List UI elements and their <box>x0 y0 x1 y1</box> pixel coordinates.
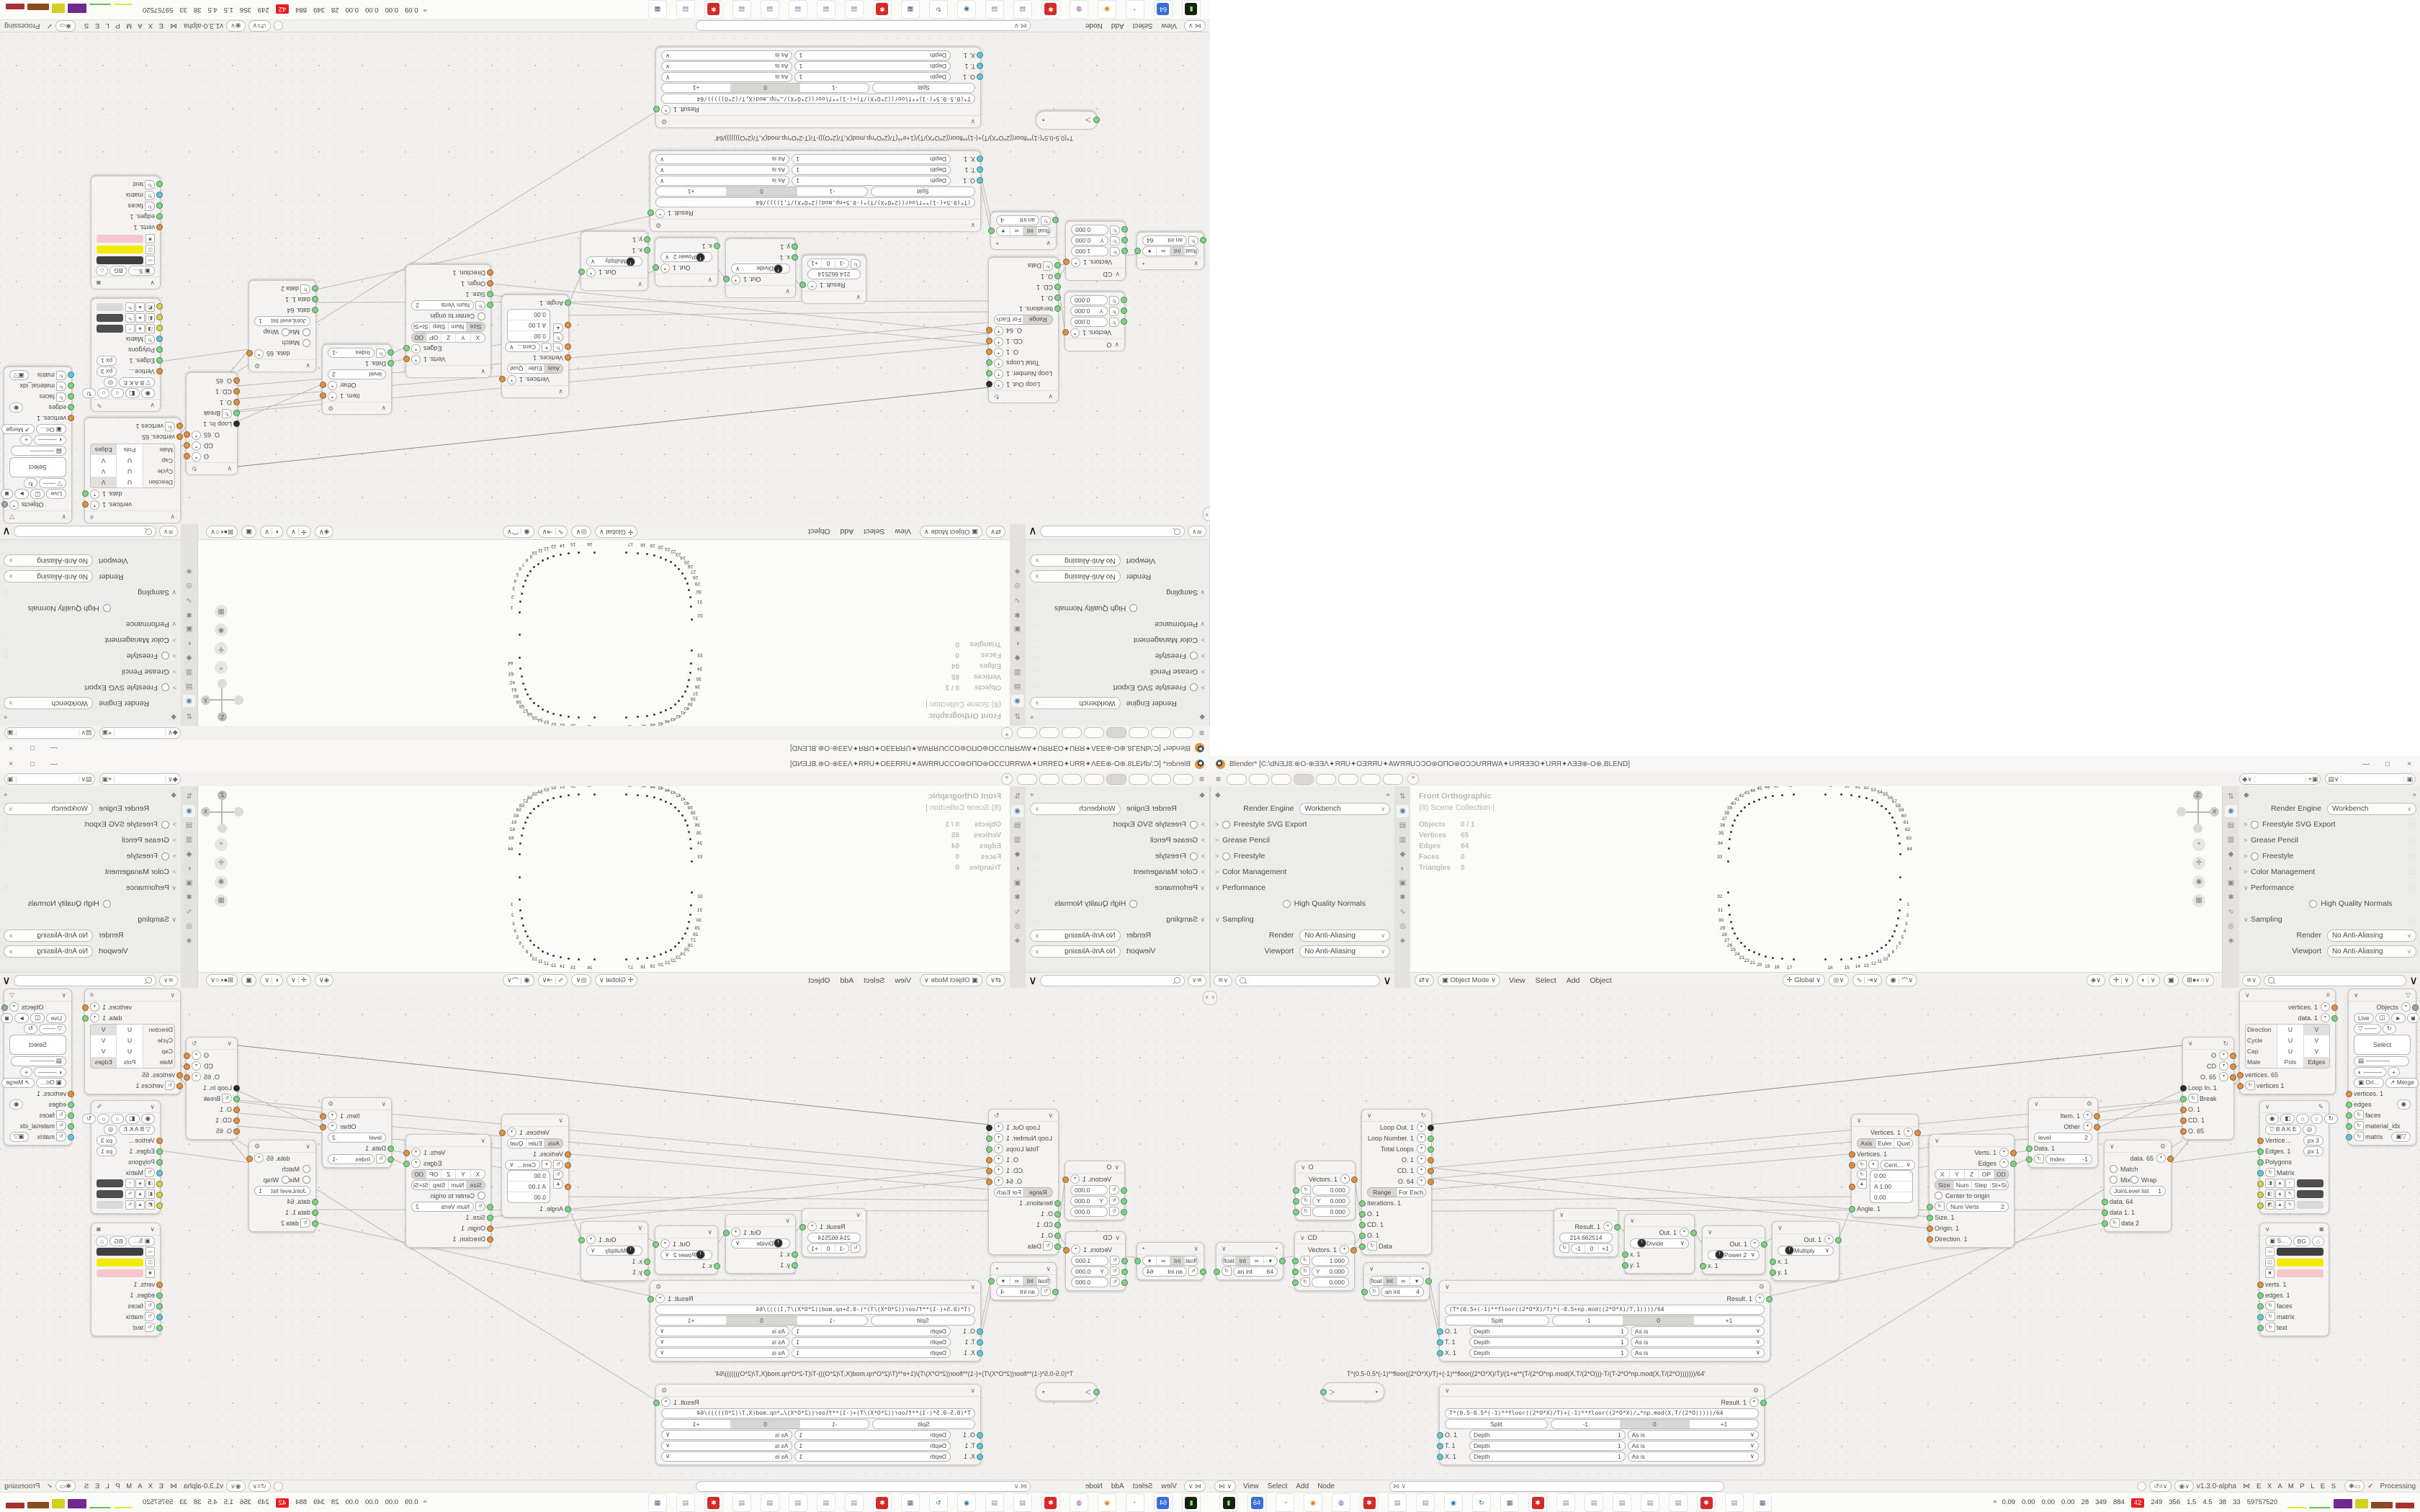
properties-tab-icon[interactable]: ◆ <box>1011 848 1023 860</box>
tool-button[interactable]: ○ <box>111 389 123 399</box>
pin-icon[interactable]: ⌖ <box>1386 791 1390 799</box>
segmented-toggle[interactable]: AxisEulerQuat <box>507 1138 563 1148</box>
socket-options-icon[interactable]: ↻ <box>222 409 232 418</box>
swatch-icon[interactable]: ▲ <box>135 313 145 323</box>
socket-l[interactable] <box>1093 1389 1100 1395</box>
socket-r[interactable] <box>1690 1230 1697 1236</box>
checkbox[interactable] <box>1935 1192 1942 1200</box>
node-formula-2[interactable]: ∨⚙Result. 1▾T*(0.5-0.5*(-1)**floor((2*O*… <box>1439 1384 1765 1465</box>
socket-l[interactable] <box>2237 1083 2244 1089</box>
checkbox-row[interactable]: High Quality Normals <box>4 600 176 616</box>
nav-gizmo[interactable]: Z X <box>200 678 243 721</box>
node-header[interactable]: ∨• <box>991 1263 1056 1275</box>
collapse-icon[interactable]: ∨ <box>1114 1164 1119 1171</box>
shading-icon[interactable]: ● <box>223 976 228 984</box>
collapse-icon[interactable]: ∨ <box>150 279 155 287</box>
node-vector-in-cd[interactable]: ∨CDVectors. 1▾↻1.000↻Y0.000↻0.000 <box>1065 221 1126 281</box>
decor[interactable]: ↻ <box>553 1170 563 1179</box>
properties-tab-icon[interactable]: ▤ <box>183 819 195 832</box>
swatch-icon[interactable]: ◨ <box>145 324 155 333</box>
socket-r[interactable] <box>1760 1400 1767 1406</box>
taskbar-app-icon[interactable]: ◉ <box>1098 1493 1116 1512</box>
socket-r[interactable] <box>246 351 253 357</box>
socket-r[interactable] <box>986 1157 992 1164</box>
tool-button[interactable]: ◐ ——— <box>2354 1067 2386 1077</box>
properties-tab-icon[interactable]: ◎ <box>1011 580 1023 592</box>
panel-checkbox[interactable] <box>1222 821 1230 829</box>
add-workspace-button[interactable]: + <box>1407 773 1419 785</box>
menu-view[interactable]: View <box>1509 976 1525 985</box>
socket-options-icon[interactable]: ↻ <box>145 1312 155 1321</box>
gizmo-x-axis[interactable]: X <box>2210 807 2219 816</box>
socket-l[interactable] <box>1359 1222 1366 1228</box>
swatch-icon[interactable]: ▲ <box>135 302 145 312</box>
node-header[interactable]: ∨▽ <box>2349 989 2416 1002</box>
properties-tab-icon[interactable]: ◈ <box>2225 935 2237 947</box>
collapse-icon[interactable]: ∨ <box>2110 1143 2115 1151</box>
panel-header-row[interactable]: ∨Performance::: <box>1215 880 1390 896</box>
panel-header-row[interactable]: >Freestyle SVG Export::: <box>4 680 176 696</box>
value-field[interactable]: JoinLevel list1 <box>254 317 310 327</box>
node-header[interactable]: ∨CD <box>1066 268 1125 280</box>
node-header[interactable]: ∨ <box>1554 1209 1618 1221</box>
taskbar-app-icon[interactable]: ✱ <box>1697 1493 1716 1512</box>
node-header[interactable]: ∨ <box>1852 1115 1918 1127</box>
node-line[interactable]: ∨Verts. 1▾Edges▾XYZOPODSizeNumStepSt+SiC… <box>405 1134 491 1248</box>
collapse-icon[interactable]: ∨ <box>707 276 712 284</box>
panel-header-row[interactable]: >Freestyle SVG Export::: <box>2244 816 2416 832</box>
socket-l[interactable] <box>1927 1215 1933 1221</box>
taskbar-app-icon[interactable]: ▤ <box>1669 1493 1688 1512</box>
split-button[interactable]: Split <box>871 1315 975 1326</box>
properties-tab-icon[interactable]: ✱ <box>1397 891 1409 904</box>
taskbar-app-icon[interactable]: ▮ <box>1219 1493 1238 1512</box>
viewport-3d[interactable]: Front Orthographic (8) Scene Collection … <box>198 786 1010 972</box>
property-value-dropdown[interactable]: Workbench∨ <box>4 803 93 815</box>
socket-l[interactable] <box>487 1215 493 1221</box>
socket-menu-icon[interactable]: ▾ <box>9 500 19 510</box>
socket-menu-icon[interactable]: ▾ <box>994 1122 1003 1132</box>
number-field[interactable]: Y0.000 <box>1312 1196 1350 1206</box>
close-button[interactable]: × <box>0 744 22 752</box>
formula-field[interactable]: (T*(0.5+(-1)**floor((2*O*X)/T)*(-0.5+np.… <box>655 1305 975 1315</box>
color-swatch[interactable] <box>97 246 143 253</box>
socket-l[interactable] <box>2257 1170 2264 1176</box>
property-value-dropdown[interactable]: No Anti-Aliasing∨ <box>4 945 93 958</box>
node-menu-select[interactable]: Select <box>1133 1482 1153 1490</box>
stepper[interactable]: -10+1 <box>807 259 849 269</box>
panel-header-row[interactable]: ∨Performance::: <box>1030 616 1205 632</box>
properties-tab-icon[interactable]: ▤ <box>1011 680 1023 693</box>
node-header[interactable]: ∨CD <box>1066 1232 1125 1244</box>
socket-menu-icon[interactable]: ▾ <box>994 369 1003 379</box>
xray-toggle[interactable]: ◐∨ <box>260 526 283 538</box>
grid-option[interactable]: U <box>117 455 143 466</box>
socket-l[interactable] <box>2237 1072 2244 1079</box>
socket-r[interactable] <box>647 210 654 217</box>
socket-options-icon[interactable]: ↻ <box>2354 1121 2364 1130</box>
socket-options-icon[interactable]: ↻ <box>2034 1154 2044 1164</box>
collapse-icon[interactable]: ∨ <box>2 973 11 988</box>
grid-option[interactable]: V <box>2303 1025 2329 1035</box>
socket-r[interactable] <box>647 1296 654 1302</box>
taskbar-app-icon[interactable]: ▤ <box>985 0 1004 19</box>
socket-menu-icon[interactable]: ▾ <box>9 1002 19 1012</box>
tool-button[interactable]: ◙ <box>1 490 13 500</box>
color-swatch[interactable] <box>97 256 143 264</box>
node-header[interactable]: ∨ <box>1930 1135 2014 1147</box>
collapse-icon[interactable]: ∨ <box>1046 1265 1051 1273</box>
segmented-toggle[interactable]: AxisEulerQuat <box>507 364 563 374</box>
socket-l[interactable] <box>156 1292 163 1299</box>
socket-menu-icon[interactable]: ▾ <box>1750 1239 1760 1248</box>
copy-icon[interactable]: ▣ <box>102 775 109 783</box>
node-header[interactable]: ∨ <box>655 274 717 286</box>
socket-r[interactable] <box>1425 1278 1432 1284</box>
node-math-multiply[interactable]: ∨Out. 1▾f Multiply∨x. 1y. 1 <box>1772 1221 1839 1281</box>
socket-menu-icon[interactable]: ▾ <box>2321 1013 2330 1022</box>
socket-menu-icon[interactable]: ▾ <box>507 1128 516 1137</box>
grid-view-button[interactable]: ▦ <box>215 605 228 618</box>
socket-r[interactable] <box>184 1063 190 1070</box>
tool-button[interactable]: ◉ <box>141 389 155 399</box>
tool-button[interactable]: ○ <box>2296 1114 2308 1124</box>
tool-button[interactable]: ▽ B A K E <box>119 378 155 388</box>
workspace-tab[interactable] <box>1316 774 1336 785</box>
swatch-icon[interactable]: ■ <box>145 234 155 243</box>
panel-header-row[interactable]: >Grease Pencil::: <box>4 664 176 680</box>
taskbar-app-icon[interactable]: ↻ <box>1472 1493 1491 1512</box>
taskbar-app-icon[interactable]: ◍ <box>1070 0 1088 19</box>
tool-button[interactable]: ▤ ———— <box>11 446 66 456</box>
panel-header-row[interactable]: ∨Sampling::: <box>4 585 176 600</box>
math-operation-dropdown[interactable]: f Multiply∨ <box>586 257 642 267</box>
socket-extra-icon[interactable]: ◉ <box>2397 1099 2411 1110</box>
socket-menu-icon[interactable]: ▾ <box>731 1228 740 1237</box>
taskbar-app-icon[interactable]: ▮ <box>1182 1493 1201 1512</box>
socket-l[interactable] <box>1849 1184 1855 1190</box>
property-value-dropdown[interactable]: No Anti-Aliasing∨ <box>2327 930 2416 942</box>
panel-header-row[interactable]: >Color Management::: <box>2244 864 2416 880</box>
node-tree-selector[interactable]: ⋈ ∨ <box>696 21 1031 32</box>
taskbar-app-icon[interactable]: ◔ <box>1126 1493 1144 1512</box>
center-dropdown[interactable]: Cent…∨ <box>505 1160 540 1170</box>
node-vector-in-cd[interactable]: ∨CDVectors. 1▾↻1.000↻Y0.000↻0.000 <box>1294 1231 1355 1291</box>
socket-options-icon[interactable]: ↻ <box>1043 261 1053 271</box>
properties-tab-icon[interactable]: ⇅ <box>1011 709 1023 721</box>
panel-header-row[interactable]: >Freestyle::: <box>1215 848 1390 864</box>
gizmo-x-axis[interactable]: X <box>201 807 210 816</box>
workspace-tab[interactable] <box>1129 774 1149 785</box>
color-swatch[interactable] <box>97 1190 123 1198</box>
socket-options-icon[interactable]: ↻ <box>475 301 485 310</box>
node-menu-select[interactable]: Select <box>1133 22 1153 30</box>
checkbox[interactable] <box>2309 900 2317 908</box>
property-value-dropdown[interactable]: No Anti-Aliasing∨ <box>4 555 93 567</box>
menu-icon[interactable]: ≡ <box>1199 728 1204 738</box>
properties-tab-icon[interactable]: ✱ <box>183 608 195 621</box>
socket-options-icon[interactable]: ↻ <box>1041 1287 1051 1296</box>
proportional-edit-toggle[interactable]: ◉⌒∨ <box>503 526 534 538</box>
node-menu-node[interactable]: Node <box>1085 22 1103 30</box>
socket-options-icon[interactable]: ↻ <box>56 1132 66 1141</box>
grid-option[interactable]: U <box>2277 1046 2303 1057</box>
property-value-dropdown[interactable]: Workbench∨ <box>2327 803 2416 815</box>
collapse-icon[interactable]: ∨ <box>785 1217 790 1225</box>
socket-l[interactable] <box>1121 1279 1128 1286</box>
socket-r[interactable] <box>986 349 992 356</box>
scene-selector[interactable]: ◆∨ ⌖ ▣ <box>99 727 181 739</box>
properties-tab-icon[interactable]: ▤ <box>1397 819 1409 832</box>
properties-tab-icon[interactable]: ◐ <box>183 863 195 875</box>
shading-mode-switch[interactable]: ⊞●◐○∨ <box>206 974 238 986</box>
taskbar-app-icon[interactable]: ◍ <box>1332 1493 1350 1512</box>
panel-header-row[interactable]: ∨Sampling::: <box>1030 912 1205 927</box>
socket-r[interactable] <box>184 443 190 449</box>
socket-menu-icon[interactable]: ▾ <box>1680 1228 1689 1237</box>
socket-r[interactable] <box>986 382 992 388</box>
depth-field[interactable]: Depth1 <box>1469 1337 1628 1347</box>
panel-checkbox[interactable] <box>161 652 169 660</box>
socket-menu-icon[interactable]: ▾ <box>1824 1235 1834 1244</box>
node-header[interactable]: ∨⚙ <box>1440 1281 1770 1293</box>
grid-option[interactable]: V <box>91 1046 117 1057</box>
panel-header-row[interactable]: >Freestyle::: <box>1030 848 1205 864</box>
socket-l[interactable] <box>977 1350 983 1356</box>
color-swatch[interactable] <box>2297 1179 2323 1187</box>
tool-button[interactable]: Live <box>46 1013 66 1023</box>
number-field[interactable]: 0.000 <box>1312 1207 1350 1217</box>
collapse-icon[interactable]: ∨ <box>1935 1137 1940 1145</box>
socket-menu-icon[interactable]: ▾ <box>254 349 264 359</box>
tray-chevron-icon[interactable]: ^^ <box>424 6 427 13</box>
segmented-toggle[interactable]: floatint∞▾ <box>996 1276 1051 1286</box>
depth-field[interactable]: Depth1 <box>794 62 951 72</box>
mode-dropdown[interactable]: As is∨ <box>1628 1441 1759 1451</box>
node-header[interactable]: ∨ <box>581 278 647 290</box>
socket-menu-icon[interactable]: ▾ <box>661 105 671 114</box>
node-header[interactable]: ∨ <box>726 285 795 297</box>
px-field[interactable]: px 3 <box>97 367 117 377</box>
decor[interactable]: ↻ <box>553 343 563 352</box>
mode-dropdown[interactable]: As is∨ <box>655 155 789 165</box>
mode-dropdown[interactable]: As is∨ <box>1631 1348 1765 1358</box>
socket-options-icon[interactable]: ↻ <box>376 1154 386 1164</box>
swatch-icon[interactable]: ▲ <box>135 1200 145 1210</box>
socket-l[interactable] <box>1200 1269 1206 1275</box>
grid-option[interactable]: Edges <box>2303 1057 2329 1068</box>
maximize-button[interactable]: □ <box>22 744 43 752</box>
socket-r[interactable] <box>403 356 410 363</box>
view-layer-selector[interactable]: ▤∨ ▣ <box>4 727 95 739</box>
properties-tab-icon[interactable]: ◉ <box>183 805 195 817</box>
socket-r[interactable] <box>723 1230 730 1236</box>
collapse-icon[interactable]: ∨ <box>970 1283 975 1291</box>
collapse-icon[interactable]: ∨ <box>2245 991 2250 999</box>
socket-l[interactable] <box>2257 1314 2264 1320</box>
nav-gizmo[interactable]: Z X <box>200 791 243 834</box>
checkbox-row[interactable]: MixWrap <box>2105 1174 2171 1185</box>
tool-button[interactable]: ↻ <box>24 1024 37 1034</box>
properties-tab-icon[interactable]: ◆ <box>1011 652 1023 664</box>
socket-r[interactable] <box>1428 1125 1434 1131</box>
node-menu-add[interactable]: Add <box>1111 1482 1124 1490</box>
collapse-icon[interactable]: ∨ <box>381 405 386 413</box>
socket-l[interactable] <box>387 1146 394 1152</box>
socket-menu-icon[interactable]: ▾ <box>192 441 201 451</box>
socket-r[interactable] <box>1428 1168 1434 1174</box>
socket-r[interactable] <box>653 107 660 113</box>
socket-options-icon[interactable]: ↻ <box>1369 1287 1379 1296</box>
shading-icon[interactable]: ⊞ <box>2187 976 2192 984</box>
node-menu-view[interactable]: View <box>1161 1482 1177 1490</box>
collapse-icon[interactable]: ∨ <box>1559 1211 1564 1219</box>
tool-button[interactable]: ◫ <box>30 1013 45 1023</box>
socket-l[interactable] <box>1054 1200 1061 1207</box>
tool-button[interactable]: ↻ <box>2324 1114 2338 1124</box>
grid-option[interactable]: V <box>2303 1035 2329 1046</box>
slider-field[interactable]: an int4 <box>996 1287 1039 1297</box>
grid-option[interactable]: V <box>91 466 117 477</box>
node-list-join[interactable]: ∨⚙data. 65▾MatchMixWrapJoinLevel list1da… <box>248 1140 316 1232</box>
tool-button[interactable]: ⌂ <box>2312 1236 2324 1246</box>
properties-tab-icon[interactable]: ◆ <box>183 848 195 860</box>
socket-menu-icon[interactable]: ▾ <box>1340 1245 1349 1254</box>
properties-tab-icon[interactable]: ∿ <box>183 594 195 606</box>
collapse-icon[interactable]: ∨ <box>1445 1387 1450 1395</box>
collapse-icon[interactable]: ∨ <box>1708 1228 1713 1236</box>
panel-checkbox[interactable] <box>161 852 169 860</box>
swatch-icon[interactable]: ✎ <box>125 1189 135 1199</box>
gizmo-x-axis[interactable]: X <box>201 696 210 705</box>
property-value-dropdown[interactable]: No Anti-Aliasing∨ <box>4 930 93 942</box>
swatch-icon[interactable]: ◨ <box>2265 1179 2275 1188</box>
split-button[interactable]: Split <box>872 1419 975 1429</box>
node-number-4[interactable]: ∨•floatint∞▾↻an int4 <box>990 1262 1057 1300</box>
node-number-result[interactable]: ∨Result. 1▾214.662514↻-10+1 <box>1554 1208 1618 1257</box>
node-vector-in-o[interactable]: ∨OVectors. 1▾↻0.000↻Y0.000↻0.000 <box>1065 292 1125 351</box>
socket-r[interactable] <box>1835 1237 1842 1243</box>
color-swatch[interactable] <box>97 1259 143 1266</box>
properties-tab-icon[interactable]: ▣ <box>1011 877 1023 889</box>
slider-icon[interactable]: ↻ <box>1110 225 1120 235</box>
properties-tab-icon[interactable]: ⇅ <box>1011 791 1023 803</box>
math-operation-dropdown[interactable]: f Power 2∨ <box>1708 1250 1760 1260</box>
depth-field[interactable]: Depth1 <box>794 1430 951 1440</box>
socket-l[interactable] <box>487 1204 493 1210</box>
node-header[interactable]: ∨↻ <box>989 390 1058 402</box>
swatch-icon[interactable]: ■ <box>2265 1269 2275 1278</box>
node-header[interactable]: ∨ <box>502 1115 568 1127</box>
math-operation-dropdown[interactable]: f Divide∨ <box>731 264 790 274</box>
pivot-selector[interactable]: ◎∨ <box>571 974 591 986</box>
workspace-tab[interactable] <box>1151 774 1171 785</box>
socket-menu-icon[interactable]: ▾ <box>994 380 1003 390</box>
decor[interactable]: ↻ <box>553 1160 563 1169</box>
socket-l[interactable] <box>2346 1112 2352 1119</box>
tools-pill[interactable]: ✱▭ <box>55 1480 76 1492</box>
properties-tab-icon[interactable]: ▣ <box>2225 877 2237 889</box>
socket-l[interactable] <box>1293 1209 1299 1215</box>
socket-r[interactable] <box>986 1179 992 1185</box>
properties-tab-icon[interactable]: ◉ <box>1011 805 1023 817</box>
taskbar-app-icon[interactable]: ◉ <box>1304 1493 1322 1512</box>
socket-l[interactable] <box>644 1269 650 1276</box>
mode-dropdown[interactable]: As is∨ <box>655 176 789 186</box>
node-objects-in[interactable]: ∨▽Objects▾Live◫►◙▽ ——↻Select▤ ————◐ ———+… <box>4 989 72 1146</box>
view-layer-selector[interactable]: ▤∨ ▣ <box>2325 773 2416 785</box>
tool-button[interactable]: BG <box>109 266 127 276</box>
center-dropdown[interactable]: Cent…∨ <box>1880 1160 1915 1170</box>
overlay-pill-2[interactable]: ◉∨ <box>2174 1480 2193 1492</box>
grid-option[interactable]: U <box>117 1025 143 1035</box>
socket-l[interactable] <box>233 1096 240 1102</box>
tool-button[interactable]: ▤ ———— <box>11 1056 66 1066</box>
node-menu-select[interactable]: Select <box>1268 1482 1288 1490</box>
checkbox-row[interactable]: High Quality Normals <box>4 896 176 912</box>
taskbar-app-icon[interactable]: ▤ <box>1613 1493 1631 1512</box>
properties-tab-icon[interactable]: ◐ <box>183 637 195 649</box>
swatch-icon[interactable]: ▲ <box>135 324 145 333</box>
properties-tab-icon[interactable]: ∿ <box>2225 906 2237 918</box>
socket-l[interactable] <box>68 1123 74 1130</box>
collapse-icon[interactable]: ∨ <box>1383 973 1391 988</box>
node-number-result[interactable]: ∨Result. 1▾214.662514↻-10+1 <box>802 1208 866 1257</box>
properties-tab-icon[interactable]: ◈ <box>1397 935 1409 947</box>
socket-menu-icon[interactable]: ▾ <box>661 1398 671 1407</box>
node-header[interactable]: ∨ <box>655 1226 717 1238</box>
slider-field[interactable]: an int4 <box>1381 1287 1424 1297</box>
camera-view-button[interactable]: ◉ <box>215 624 228 636</box>
socket-l[interactable] <box>68 1102 74 1108</box>
tool-button[interactable]: ► <box>2391 1013 2406 1023</box>
collapse-icon[interactable]: ∨ <box>1778 1224 1783 1232</box>
pin-icon[interactable]: ⌖ <box>2412 791 2416 799</box>
panel-header-row[interactable]: ∨Performance::: <box>4 880 176 896</box>
swatch-icon[interactable]: ✎ <box>125 302 135 312</box>
socket-l[interactable] <box>792 1251 798 1258</box>
node-viewer-draw[interactable]: ∨✎◉◧○○↻▽ B A K E◎Vertice…px 3Edges. 1px … <box>2259 1100 2329 1214</box>
node-rotate-vertices[interactable]: ∨Vertices. 1▾AxisEulerQuatVertices. 1↻▾C… <box>501 1114 569 1218</box>
socket-l[interactable] <box>1359 1233 1366 1239</box>
tool-button[interactable]: ◙ <box>1 1013 13 1023</box>
properties-tab-icon[interactable]: ◐ <box>1011 637 1023 649</box>
socket-r[interactable] <box>986 328 992 334</box>
node-formula-1[interactable]: ∨⚙Result. 1▾(T*(0.5+(-1)**floor((2*O*X)/… <box>1439 1280 1770 1362</box>
scene-selector[interactable]: ◆∨ ⌖ ▣ <box>99 773 181 785</box>
socket-r[interactable] <box>988 1278 995 1284</box>
properties-tab-icon[interactable]: ▤ <box>1011 819 1023 832</box>
grid-option[interactable]: V <box>91 1025 117 1035</box>
socket-r[interactable] <box>2094 1113 2100 1120</box>
taskbar-app-icon[interactable]: ▤ <box>1388 1493 1407 1512</box>
add-workspace-button[interactable]: + <box>1001 727 1013 739</box>
socket-l[interactable] <box>233 1085 240 1092</box>
socket-r[interactable] <box>82 502 89 508</box>
menu-object[interactable]: Object <box>1590 976 1612 985</box>
socket-r[interactable] <box>1761 1241 1767 1248</box>
menu-add[interactable]: Add <box>1567 976 1580 985</box>
math-operation-dropdown[interactable]: f Divide∨ <box>1630 1238 1689 1248</box>
socket-l[interactable] <box>1292 1279 1299 1286</box>
workspace-tab[interactable] <box>1151 728 1171 739</box>
property-value-dropdown[interactable]: No Anti-Aliasing∨ <box>2327 945 2416 958</box>
checkbox[interactable] <box>2130 1176 2138 1184</box>
nav-gizmo[interactable]: Z X <box>2177 791 2220 834</box>
taskbar-app-icon[interactable]: ▤ <box>1013 0 1032 19</box>
property-value-dropdown[interactable]: No Anti-Aliasing∨ <box>4 571 93 583</box>
node-list-join[interactable]: ∨⚙data. 65▾MatchMixWrapJoinLevel list1da… <box>248 280 316 372</box>
